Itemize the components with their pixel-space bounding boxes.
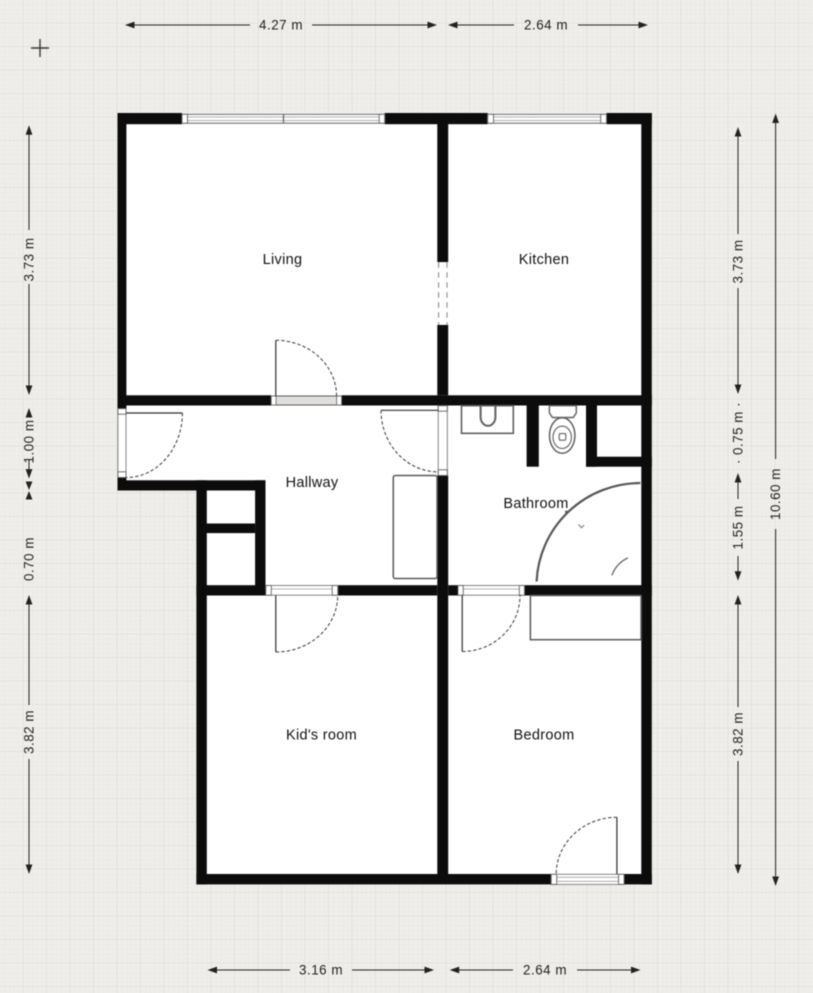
svg-text:4.27 m: 4.27 m [259, 18, 303, 33]
svg-text:3.82 m: 3.82 m [22, 710, 37, 754]
svg-text:1.55 m: 1.55 m [731, 506, 746, 550]
svg-text:3.73 m: 3.73 m [22, 238, 37, 282]
svg-text:3.82 m: 3.82 m [731, 712, 746, 756]
svg-text:Bathroom: Bathroom [503, 496, 568, 512]
svg-text:3.73 m: 3.73 m [731, 240, 746, 284]
svg-text:1.00 m: 1.00 m [22, 420, 37, 464]
svg-text:Living: Living [263, 252, 303, 268]
svg-text:Hallway: Hallway [286, 475, 339, 491]
svg-text:10.60 m: 10.60 m [768, 468, 783, 520]
svg-text:Bedroom: Bedroom [514, 728, 575, 744]
svg-text:2.64 m: 2.64 m [524, 18, 568, 33]
svg-text:Kid's room: Kid's room [286, 728, 357, 744]
svg-text:· 0.75 m ·: · 0.75 m · [731, 402, 746, 464]
svg-text:2.64 m: 2.64 m [523, 963, 567, 978]
svg-text:3.16 m: 3.16 m [299, 963, 343, 978]
svg-text:0.70 m: 0.70 m [22, 537, 37, 581]
svg-text:Kitchen: Kitchen [519, 252, 569, 268]
